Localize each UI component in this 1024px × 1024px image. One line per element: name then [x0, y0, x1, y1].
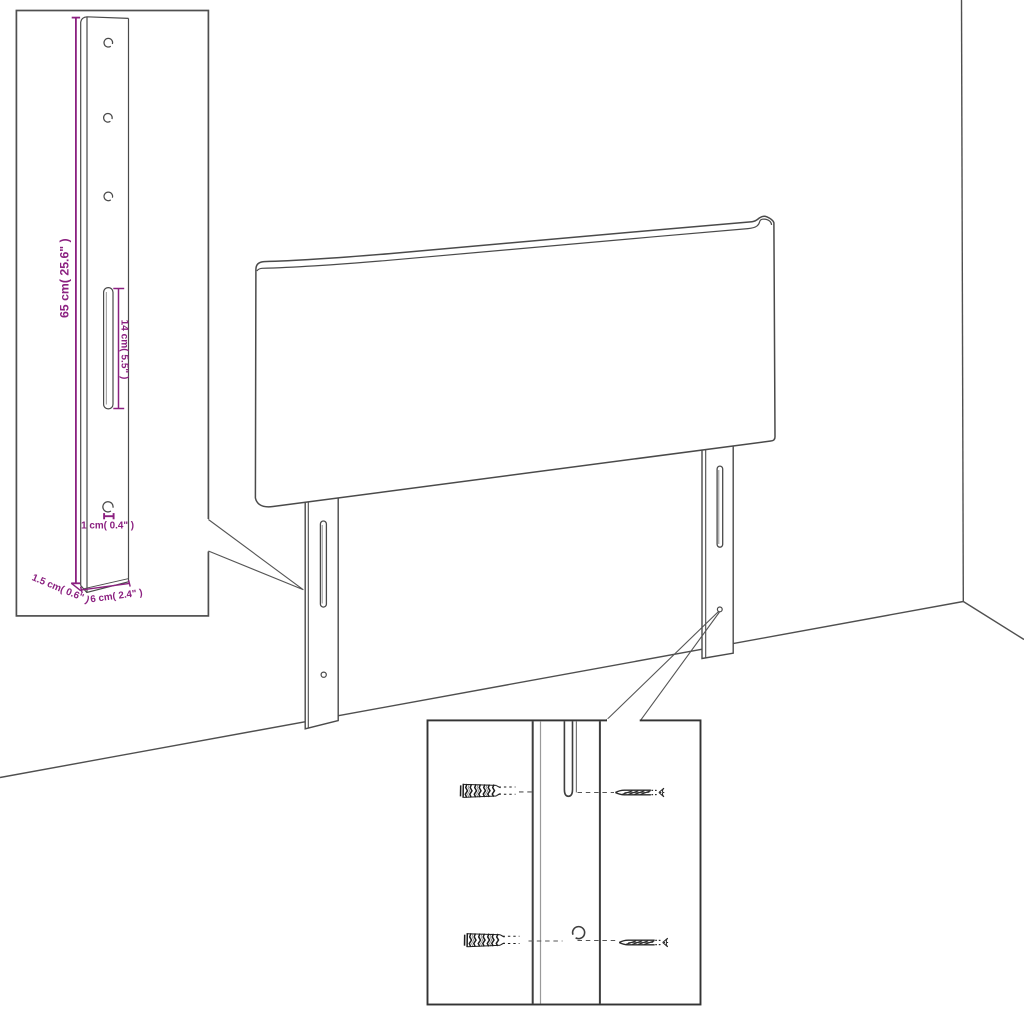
svg-text:14 cm( 5.5" ): 14 cm( 5.5" ) [118, 320, 129, 380]
svg-text:1 cm( 0.4" ): 1 cm( 0.4" ) [81, 520, 134, 531]
svg-text:65 cm( 25.6" ): 65 cm( 25.6" ) [57, 238, 71, 318]
